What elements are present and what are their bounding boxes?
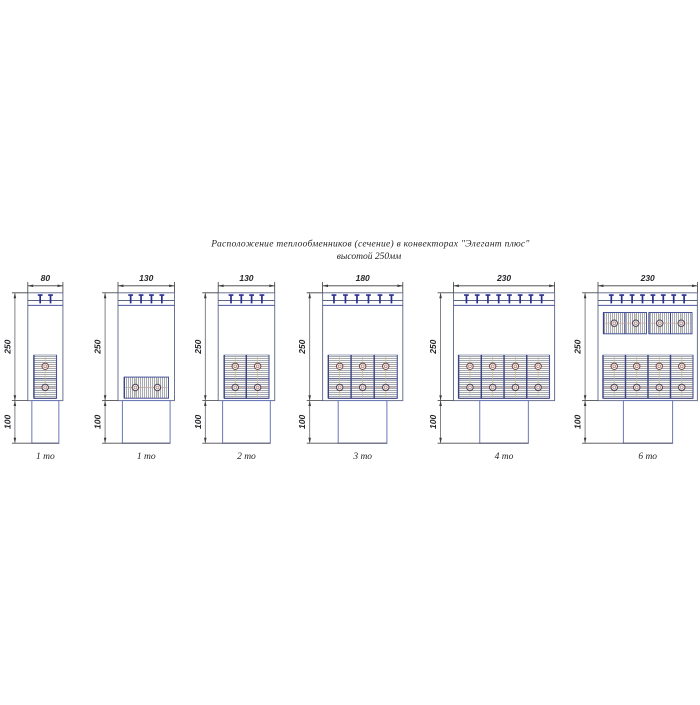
svg-text:Расположение теплообменников (: Расположение теплообменников (сечение) в…: [210, 238, 530, 249]
svg-text:180: 180: [356, 273, 370, 283]
svg-text:230: 230: [640, 273, 655, 283]
svg-text:3 то: 3 то: [352, 452, 372, 462]
svg-text:250: 250: [573, 339, 583, 354]
svg-text:2 то: 2 то: [237, 452, 256, 462]
svg-text:6 то: 6 то: [638, 452, 657, 462]
svg-text:250: 250: [93, 339, 103, 354]
svg-text:250: 250: [428, 339, 438, 354]
svg-text:130: 130: [139, 273, 153, 283]
svg-text:100: 100: [193, 415, 203, 429]
svg-text:230: 230: [496, 273, 511, 283]
svg-text:250: 250: [193, 339, 203, 354]
svg-text:80: 80: [41, 273, 51, 283]
svg-text:100: 100: [428, 415, 438, 429]
svg-text:100: 100: [297, 415, 307, 429]
svg-text:250: 250: [297, 339, 307, 354]
svg-text:100: 100: [2, 415, 12, 429]
svg-text:100: 100: [93, 415, 103, 429]
svg-text:250: 250: [2, 339, 12, 354]
svg-text:4 то: 4 то: [495, 452, 514, 462]
svg-text:1 то: 1 то: [36, 452, 55, 462]
svg-text:130: 130: [239, 273, 253, 283]
svg-text:высотой 250мм: высотой 250мм: [337, 251, 401, 262]
svg-text:1 то: 1 то: [137, 452, 156, 462]
svg-text:100: 100: [573, 415, 583, 429]
